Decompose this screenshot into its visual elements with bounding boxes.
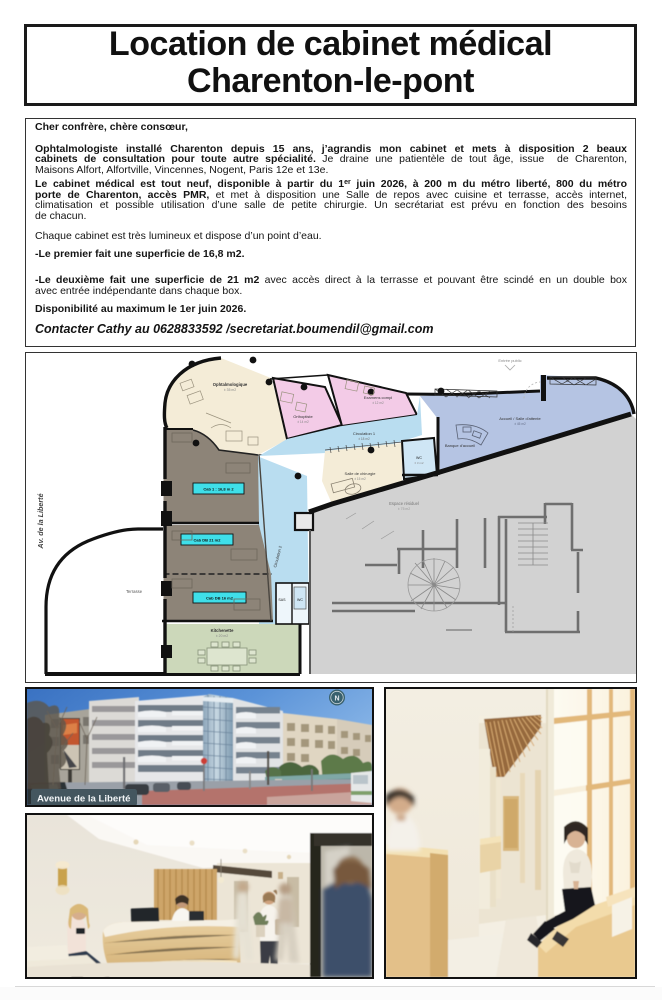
svg-text:Entrée public: Entrée public <box>498 358 521 363</box>
svg-text:± 12 m2: ± 12 m2 <box>372 401 384 405</box>
svg-text:Orthoptiste: Orthoptiste <box>293 414 313 419</box>
svg-text:Salle de chirurgie: Salle de chirurgie <box>345 471 377 476</box>
svg-text:Kitchenette: Kitchenette <box>211 628 234 633</box>
svg-text:Circulation 1: Circulation 1 <box>353 431 376 436</box>
svg-text:N: N <box>334 696 339 703</box>
svg-text:Terrasse: Terrasse <box>126 589 143 594</box>
svg-text:± 20 m2: ± 20 m2 <box>216 634 228 638</box>
svg-text:Banque d'accueil: Banque d'accueil <box>445 443 475 448</box>
svg-text:± 18 m2: ± 18 m2 <box>358 437 370 441</box>
svg-text:± 45 m2: ± 45 m2 <box>514 422 526 426</box>
svg-text:Espace résiduel: Espace résiduel <box>389 501 419 506</box>
svg-text:Examens compl: Examens compl <box>364 395 393 400</box>
svg-text:± 3 m2: ± 3 m2 <box>414 461 423 465</box>
svg-text:WC: WC <box>297 598 303 602</box>
svg-text:SAS: SAS <box>278 598 286 602</box>
svg-text:Cab DB 21 m2: Cab DB 21 m2 <box>194 538 222 543</box>
svg-text:Accueil / Salle d'attente: Accueil / Salle d'attente <box>499 416 541 421</box>
svg-text:Ophtalmologique: Ophtalmologique <box>213 382 248 387</box>
svg-text:Av. de la Liberté: Av. de la Liberté <box>36 493 45 549</box>
svg-text:Avenue de la Liberté: Avenue de la Liberté <box>37 794 130 805</box>
svg-text:± 35 m2: ± 35 m2 <box>224 388 236 392</box>
svg-text:± 75 m2: ± 75 m2 <box>398 507 410 511</box>
svg-text:WC: WC <box>416 456 422 460</box>
svg-text:± 15 m2: ± 15 m2 <box>354 477 366 481</box>
svg-text:Cab DB 16 m2: Cab DB 16 m2 <box>206 596 234 601</box>
svg-text:Cab 1 : 16,8 m 2: Cab 1 : 16,8 m 2 <box>203 487 234 492</box>
svg-text:± 14 m2: ± 14 m2 <box>297 420 309 424</box>
